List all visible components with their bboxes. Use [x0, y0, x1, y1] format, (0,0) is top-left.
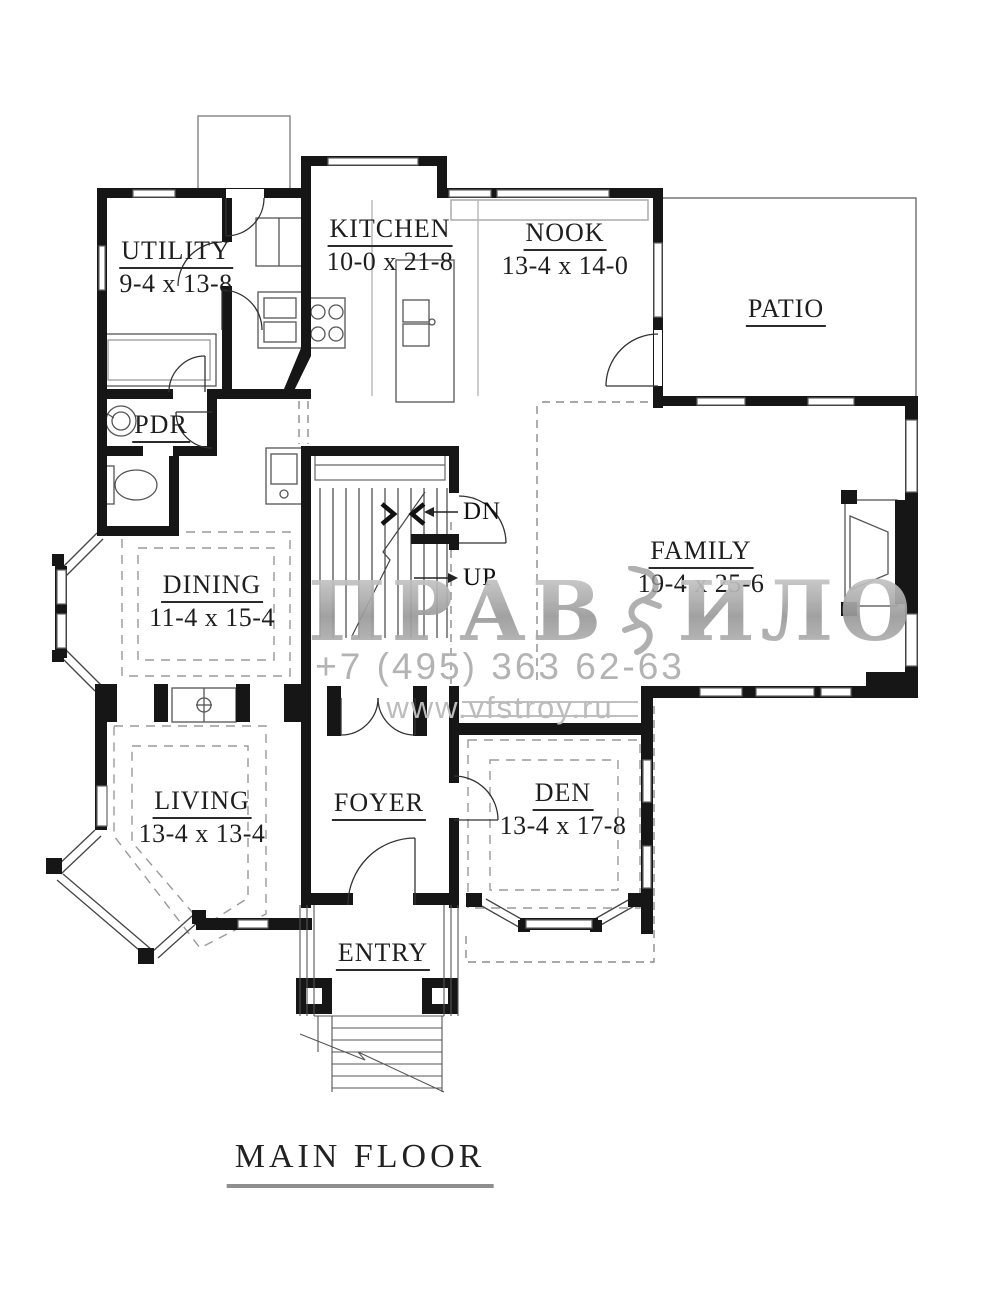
watermark-brand-right: ИЛО	[677, 571, 916, 653]
room-dims: 13-4 x 14-0	[502, 251, 629, 281]
utility-counter	[102, 334, 216, 386]
room-label-pdr: PDR	[132, 410, 190, 443]
room-dims: 13-4 x 13-4	[139, 819, 266, 849]
room-label-utility: UTILITY 9-4 x 13-8	[119, 236, 233, 299]
room-name: LIVING	[152, 786, 252, 819]
stove	[307, 298, 345, 348]
room-name: DEN	[533, 778, 593, 811]
room-label-nook: NOOK 13-4 x 14-0	[502, 218, 629, 281]
stair-label-dn: DN	[463, 498, 501, 526]
door-nook-patio	[606, 334, 658, 386]
room-label-den: DEN 13-4 x 17-8	[500, 778, 627, 841]
room-name: UTILITY	[119, 236, 233, 269]
room-label-patio: PATIO	[746, 294, 826, 327]
brand-ornament-icon	[617, 566, 667, 658]
buffet	[172, 688, 236, 722]
room-name: FOYER	[332, 788, 426, 821]
room-dims: 10-0 x 21-8	[327, 247, 454, 277]
room-label-entry: ENTRY	[336, 938, 430, 971]
room-name: KITCHEN	[327, 214, 452, 247]
watermark-phone: +7 (495) 363 62-63	[315, 646, 685, 688]
kitchen-island	[396, 260, 454, 402]
room-label-living: LIVING 13-4 x 13-4	[139, 786, 266, 849]
toilet	[99, 466, 157, 504]
watermark-website: www.vfstroy.ru	[386, 690, 613, 726]
room-name: PATIO	[746, 294, 826, 327]
nook-counter	[451, 200, 648, 220]
room-label-foyer: FOYER	[332, 788, 426, 821]
floorplan-sheet: UTILITY 9-4 x 13-8 KITCHEN 10-0 x 21-8 N…	[0, 0, 1000, 1294]
room-name: NOOK	[523, 218, 606, 251]
room-name: PDR	[132, 410, 190, 443]
door-den	[454, 776, 498, 820]
room-name: DINING	[161, 570, 263, 603]
stair-break-chevrons	[382, 504, 424, 524]
hall-cabinet	[266, 448, 302, 504]
room-label-kitchen: KITCHEN 10-0 x 21-8	[327, 214, 454, 277]
page-title: MAIN FLOOR	[227, 1138, 494, 1188]
room-label-dining: DINING 11-4 x 15-4	[149, 570, 275, 633]
room-dims: 13-4 x 17-8	[500, 811, 627, 841]
door-front	[348, 838, 415, 905]
room-dims: 11-4 x 15-4	[149, 603, 275, 633]
chimney-pad	[198, 116, 290, 190]
room-name: ENTRY	[336, 938, 430, 971]
watermark-brand: ПРАВ ИЛО	[308, 566, 917, 658]
cut-line	[300, 1034, 444, 1092]
room-dims: 9-4 x 13-8	[119, 269, 233, 299]
watermark-brand-left: ПРАВ	[308, 571, 607, 653]
